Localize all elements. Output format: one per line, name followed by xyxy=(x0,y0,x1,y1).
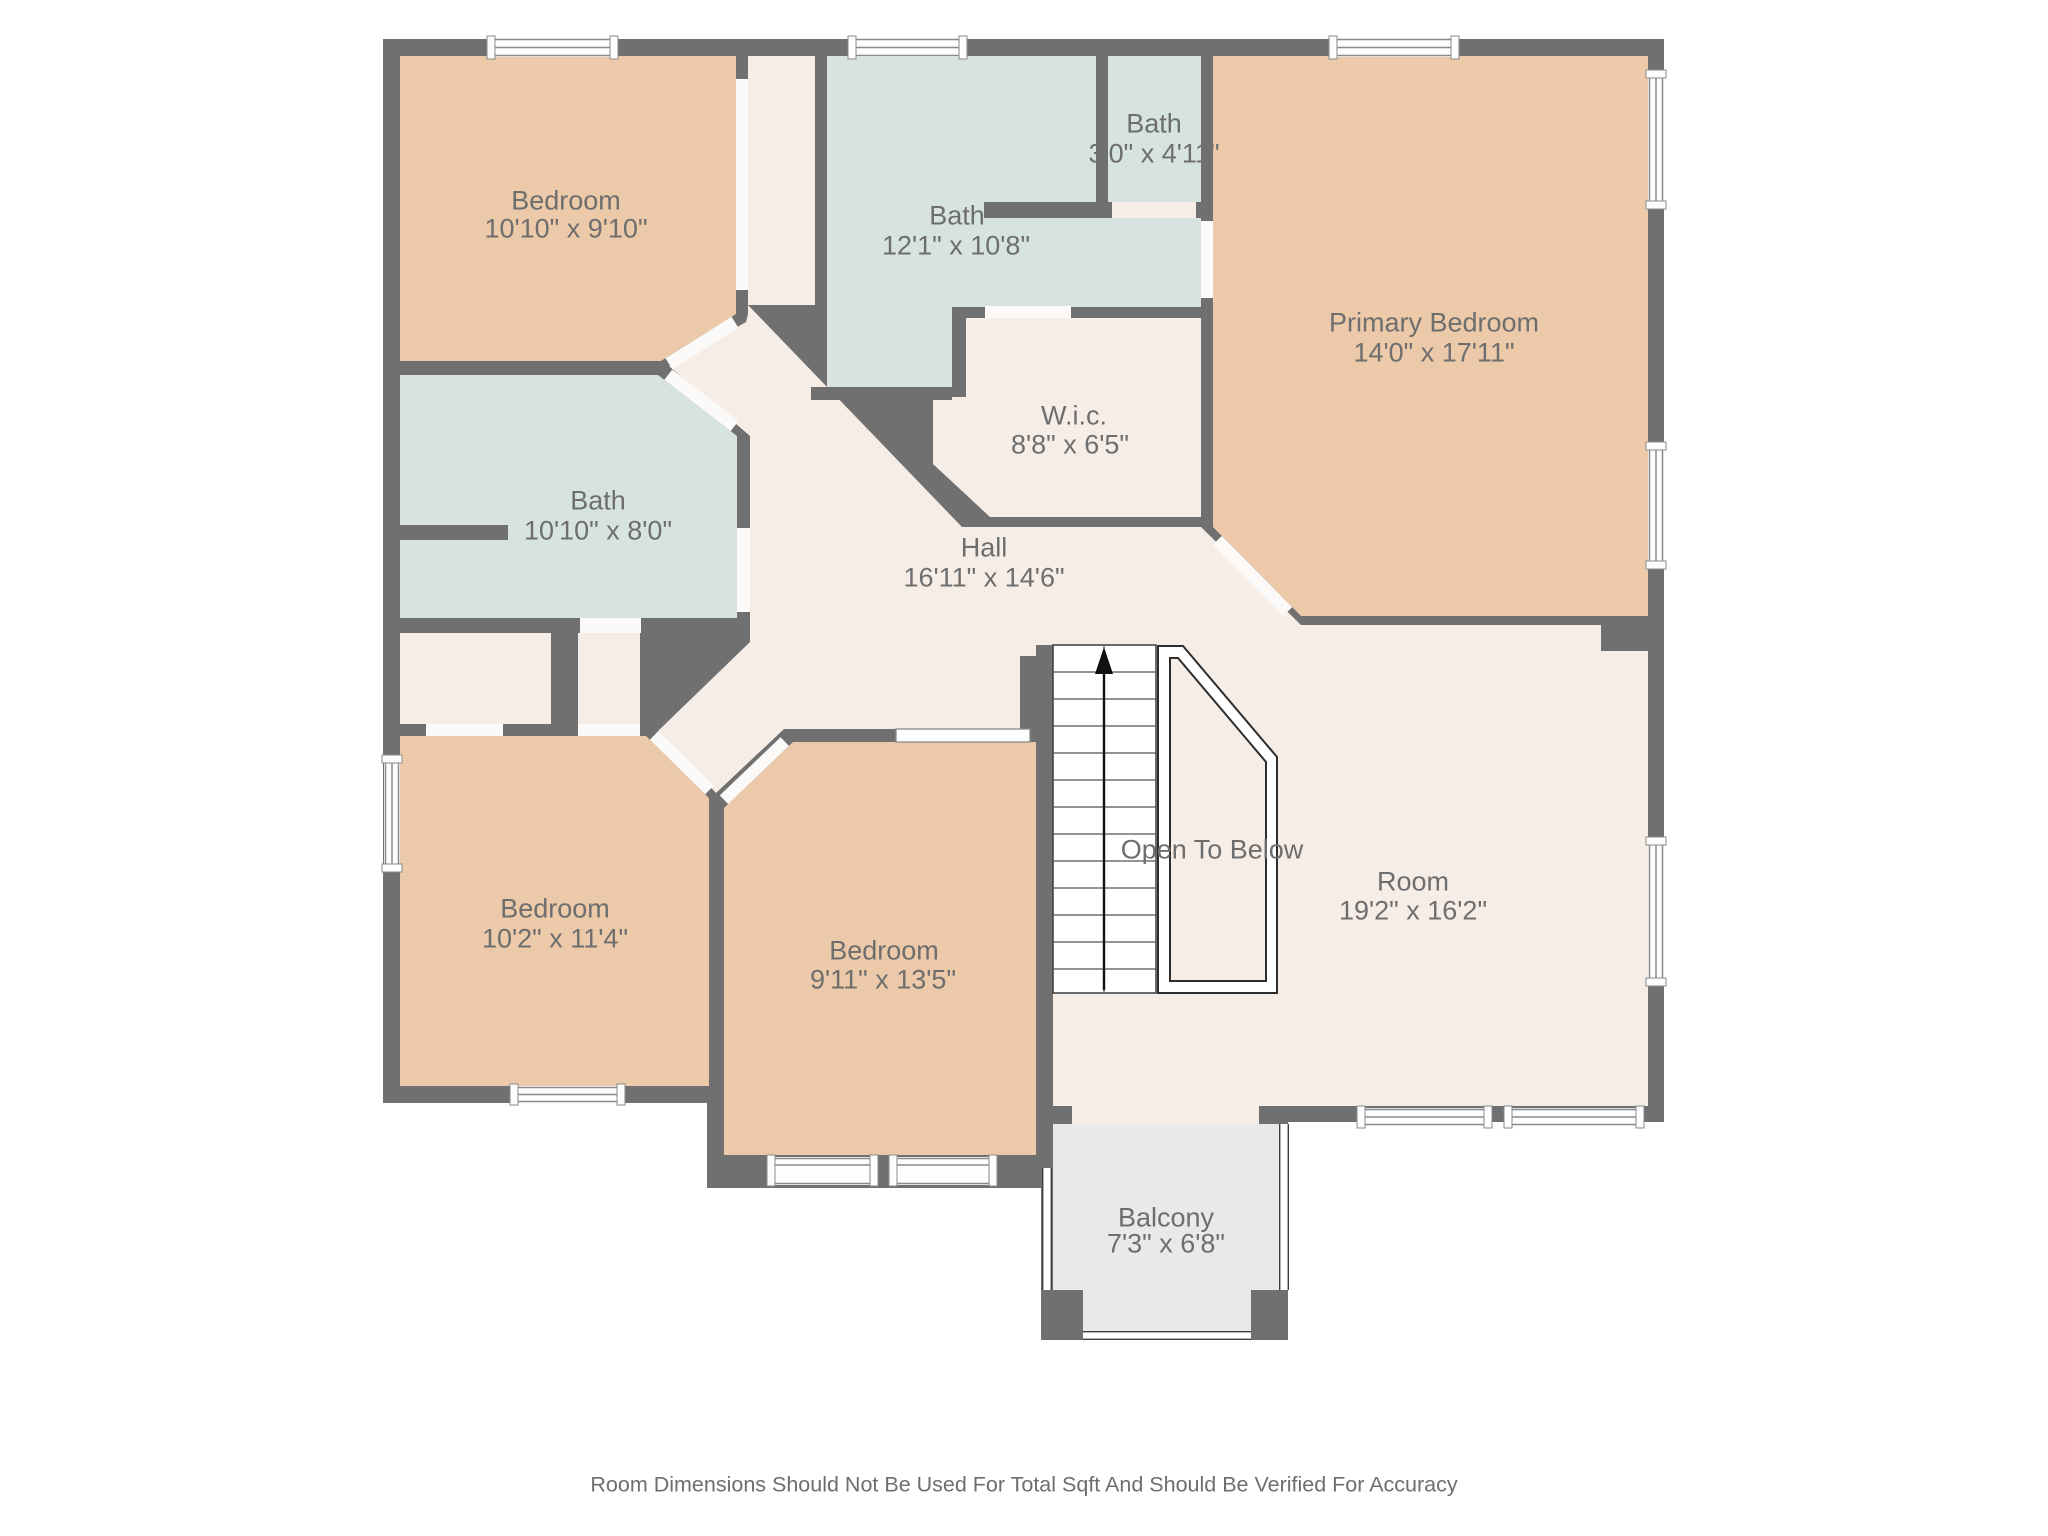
svg-text:Hall: Hall xyxy=(961,533,1008,563)
svg-text:10'10" x 8'0": 10'10" x 8'0" xyxy=(524,516,672,546)
svg-text:10'10" x 9'10": 10'10" x 9'10" xyxy=(484,214,647,244)
svg-text:Bath: Bath xyxy=(570,486,626,516)
svg-text:Bath: Bath xyxy=(929,201,985,231)
svg-text:3'0" x 4'11": 3'0" x 4'11" xyxy=(1088,139,1219,169)
svg-text:Bedroom: Bedroom xyxy=(500,894,610,924)
svg-text:Room: Room xyxy=(1377,867,1449,897)
svg-text:Room Dimensions Should Not Be: Room Dimensions Should Not Be Used For T… xyxy=(590,1473,1457,1497)
svg-text:9'11" x 13'5": 9'11" x 13'5" xyxy=(810,965,956,995)
svg-text:Bath: Bath xyxy=(1126,109,1182,139)
svg-text:Open To Below: Open To Below xyxy=(1121,835,1304,865)
svg-text:10'2" x 11'4": 10'2" x 11'4" xyxy=(482,924,628,954)
svg-text:Primary Bedroom: Primary Bedroom xyxy=(1329,308,1539,338)
svg-text:12'1" x 10'8": 12'1" x 10'8" xyxy=(882,231,1030,261)
svg-text:Bedroom: Bedroom xyxy=(829,936,939,966)
svg-text:19'2" x 16'2": 19'2" x 16'2" xyxy=(1339,896,1487,926)
svg-text:14'0" x 17'11": 14'0" x 17'11" xyxy=(1353,338,1514,368)
svg-text:Bedroom: Bedroom xyxy=(511,186,621,216)
svg-text:16'11" x 14'6": 16'11" x 14'6" xyxy=(903,563,1064,593)
svg-text:W.i.c.: W.i.c. xyxy=(1041,401,1107,431)
svg-text:7'3" x 6'8": 7'3" x 6'8" xyxy=(1107,1229,1225,1259)
svg-text:8'8" x 6'5": 8'8" x 6'5" xyxy=(1011,430,1129,460)
